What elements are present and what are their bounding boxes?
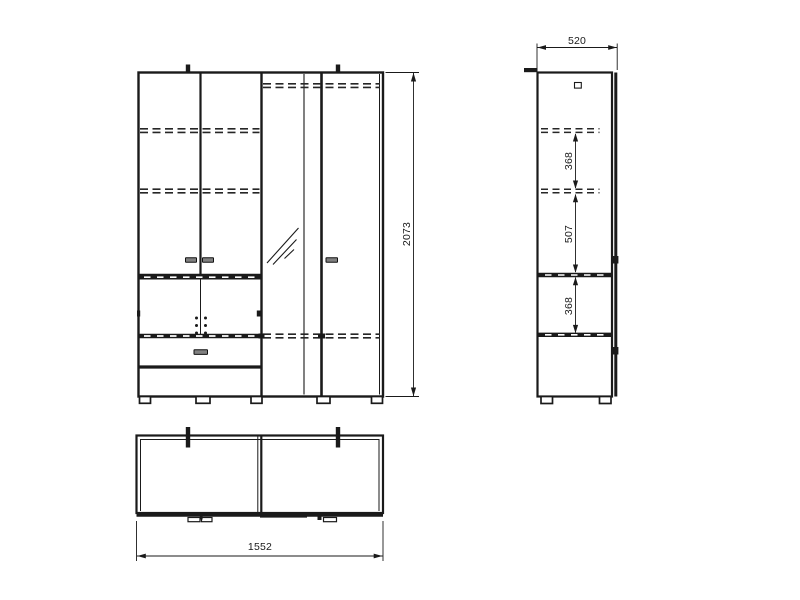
drawer-handle <box>194 350 208 355</box>
left-door-handle <box>186 258 197 262</box>
plan-top-pegs <box>186 427 340 448</box>
plan-handles <box>188 518 337 522</box>
right-door-handle <box>326 258 338 262</box>
drawing-canvas: 2073 520 368 507 368 1552 <box>0 0 800 600</box>
side-outline <box>538 73 613 397</box>
technical-drawing-linework <box>0 0 800 600</box>
shelf-spacing-middle-label: 507 <box>564 224 575 242</box>
hinge-marks <box>137 311 261 317</box>
dimension-depth <box>537 44 617 71</box>
height-dimension-label: 2073 <box>402 222 413 246</box>
hidden-shelf-lines <box>140 84 380 338</box>
side-top-peg <box>524 68 538 72</box>
middle-door-handle <box>203 258 214 262</box>
plan-outline <box>137 436 384 514</box>
mirror-glass-marks <box>267 228 299 265</box>
shelf-spacing-bottom-label: 368 <box>564 296 575 314</box>
width-dimension-label: 1552 <box>248 542 272 553</box>
top-view <box>137 427 384 522</box>
front-view <box>137 65 383 404</box>
depth-dimension-label: 520 <box>568 35 586 46</box>
fixed-shelf-lines <box>139 277 326 338</box>
cam-fitting-mark <box>575 83 582 89</box>
shelf-spacing-top-label: 368 <box>564 152 575 170</box>
